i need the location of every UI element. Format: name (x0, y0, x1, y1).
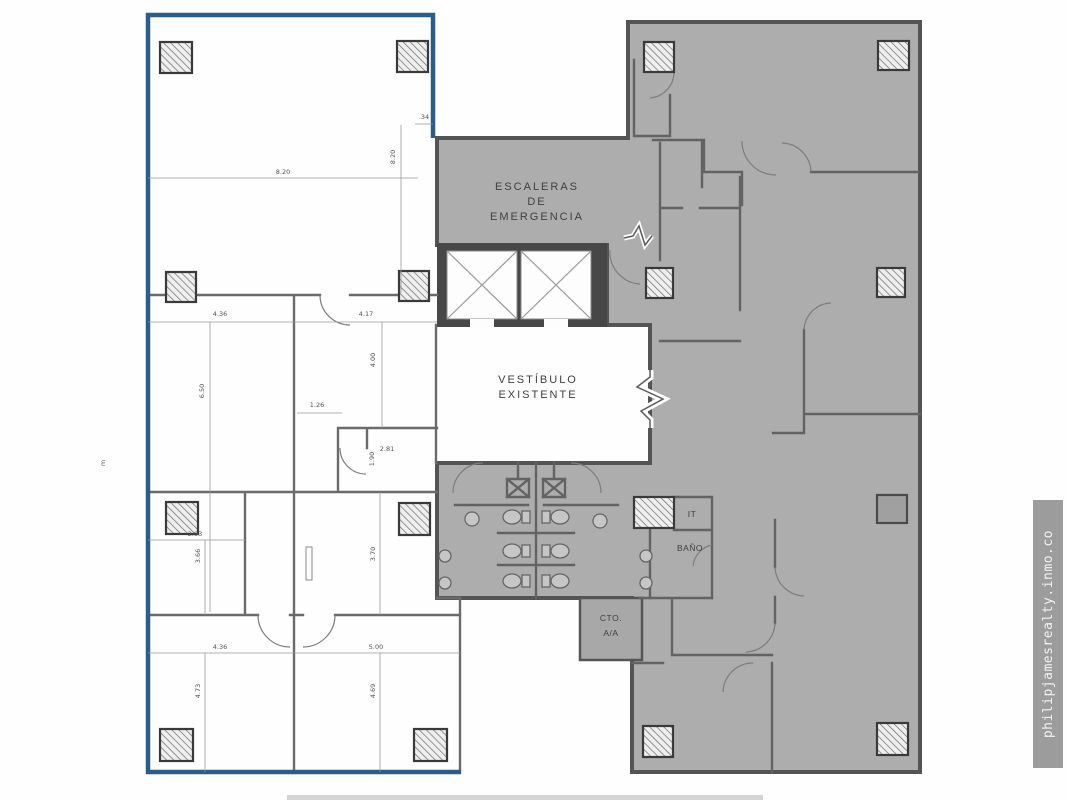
door-arcs-left (258, 295, 366, 647)
watermark-text: philipjamesrealty.inmo.co (1041, 530, 1056, 738)
dimension-label: .34 (419, 113, 429, 121)
scale-bar-partial (287, 795, 763, 800)
dimension-label: 4.00 (369, 353, 377, 367)
floor-plan: ESCALERAS DE EMERGENCIA VESTÍBULO EXISTE… (0, 0, 1067, 800)
dimension-label: 6.50 (198, 384, 206, 398)
dimension-label: 4.36 (213, 310, 227, 318)
left-unit-outline (148, 15, 461, 772)
it-room-label: IT (688, 509, 697, 519)
elevator-core (437, 243, 607, 327)
column-hatched (399, 503, 430, 535)
stairs-label-line3: EMERGENCIA (490, 211, 584, 223)
dimension-label: m (99, 460, 107, 466)
column-hatched (877, 723, 908, 755)
vestibule-label-line1: VESTÍBULO (498, 373, 578, 386)
dimension-label: 5.00 (369, 643, 383, 651)
dimension-label: 4.69 (369, 684, 377, 698)
column-hatched (397, 41, 428, 72)
column-hatched (166, 272, 196, 302)
column-hatched (877, 268, 905, 297)
stairs-label-line1: ESCALERAS (495, 181, 579, 193)
dimension-label: 2.81 (380, 445, 394, 453)
vestibule-label-line2: EXISTENTE (498, 389, 577, 401)
dimension-label: 4.17 (359, 310, 373, 318)
column-hatched (644, 42, 674, 72)
column-hatched (643, 726, 673, 757)
door-leaf (306, 547, 312, 580)
column-solid (877, 495, 907, 523)
column-hatched (878, 41, 909, 70)
column-hatched (160, 42, 192, 73)
stairs-label-line2: DE (527, 196, 546, 208)
ac-closet-label-line1: CTO. (600, 613, 622, 623)
ac-closet-label-line2: A/A (603, 628, 618, 638)
dimension-label: 2.93 (188, 530, 202, 538)
dimension-label: 3.66 (194, 549, 202, 563)
column-hatched (634, 497, 674, 528)
column-hatched (160, 729, 193, 761)
dimension-label: 3.70 (369, 547, 377, 561)
column-hatched (414, 729, 447, 761)
dimension-lines (148, 124, 460, 772)
watermark-strip: philipjamesrealty.inmo.co (1033, 500, 1063, 768)
column-hatched (646, 268, 673, 298)
column-hatched (399, 271, 429, 301)
dimension-label: 8.20 (276, 168, 290, 176)
floor-plan-drawing: ESCALERAS DE EMERGENCIA VESTÍBULO EXISTE… (0, 0, 1067, 800)
dimension-label: 4.73 (194, 684, 202, 698)
dimension-label: 4.36 (213, 643, 227, 651)
dimension-label: 1.26 (310, 401, 324, 409)
dimension-label: 1.90 (368, 452, 376, 466)
bathroom-label: BAÑO (677, 543, 703, 553)
dimension-label: 8.20 (389, 150, 397, 164)
